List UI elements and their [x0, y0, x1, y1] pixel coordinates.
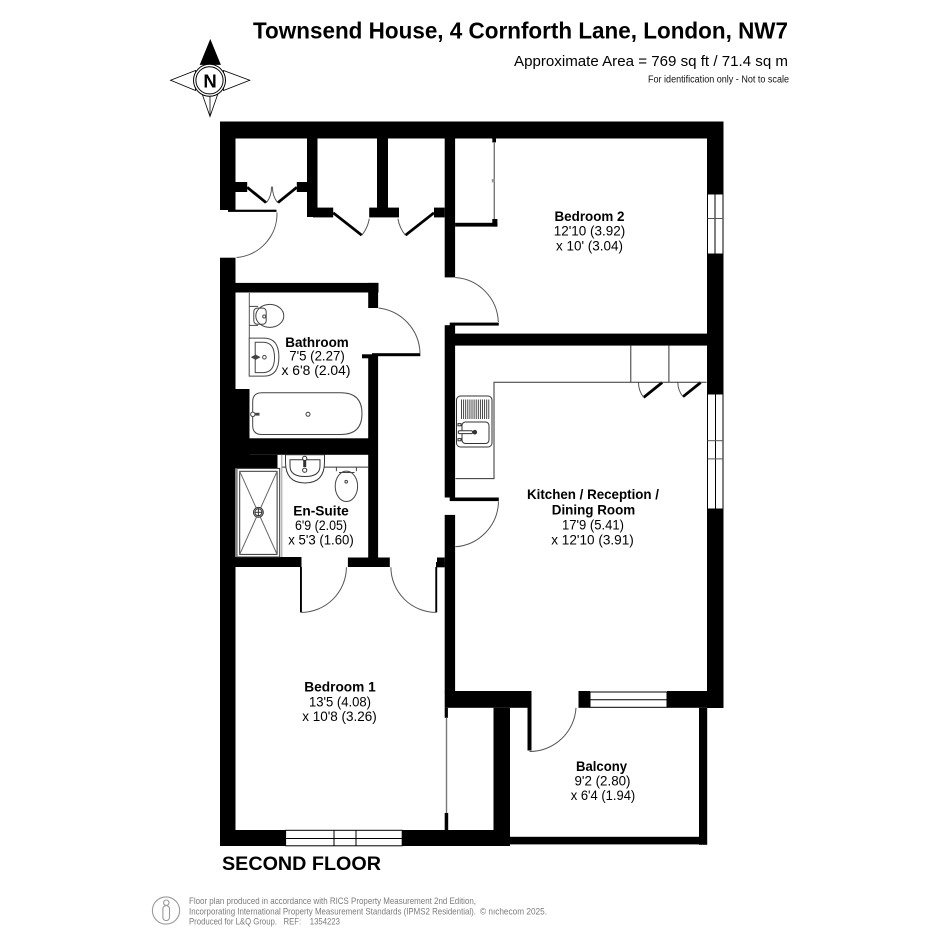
svg-text:x 6'8 (2.04): x 6'8 (2.04) — [282, 362, 351, 378]
svg-text:Bedroom 1: Bedroom 1 — [304, 678, 376, 694]
svg-text:Produced for L&Q Group. REF:: Produced for L&Q Group. REF: 1354223 — [189, 917, 340, 927]
svg-text:Incorporating International Pr: Incorporating International Property Mea… — [189, 906, 476, 916]
svg-text:Townsend House, 4 Cornforth La: Townsend House, 4 Cornforth Lane, London… — [253, 18, 788, 44]
svg-text:Approximate Area = 769 sq ft /: Approximate Area = 769 sq ft / 71.4 sq m — [514, 53, 788, 70]
svg-text:N: N — [203, 70, 216, 91]
svg-text:© nıchecom 2025.: © nıchecom 2025. — [480, 906, 547, 916]
svg-text:SECOND FLOOR: SECOND FLOOR — [222, 853, 381, 875]
svg-text:x 10'8 (3.26): x 10'8 (3.26) — [302, 708, 377, 724]
svg-text:17'9 (5.41): 17'9 (5.41) — [562, 516, 624, 532]
svg-text:Kitchen / Reception /: Kitchen / Reception / — [527, 486, 659, 502]
svg-text:x 6'4 (1.94): x 6'4 (1.94) — [571, 787, 636, 803]
svg-text:Floor plan produced in accorda: Floor plan produced in accordance with R… — [189, 896, 476, 906]
svg-text:Bedroom 2: Bedroom 2 — [555, 208, 625, 224]
svg-text:12'10 (3.92): 12'10 (3.92) — [554, 223, 626, 239]
svg-text:x 10' (3.04): x 10' (3.04) — [556, 237, 623, 253]
svg-text:9'2 (2.80): 9'2 (2.80) — [575, 773, 631, 789]
svg-text:Balcony: Balcony — [576, 758, 627, 774]
svg-text:Dining Room: Dining Room — [552, 501, 636, 517]
svg-text:For identification only - Not: For identification only - Not to scale — [648, 74, 789, 85]
svg-text:x 5'3 (1.60): x 5'3 (1.60) — [288, 531, 354, 547]
svg-text:x 12'10 (3.91): x 12'10 (3.91) — [551, 531, 634, 547]
